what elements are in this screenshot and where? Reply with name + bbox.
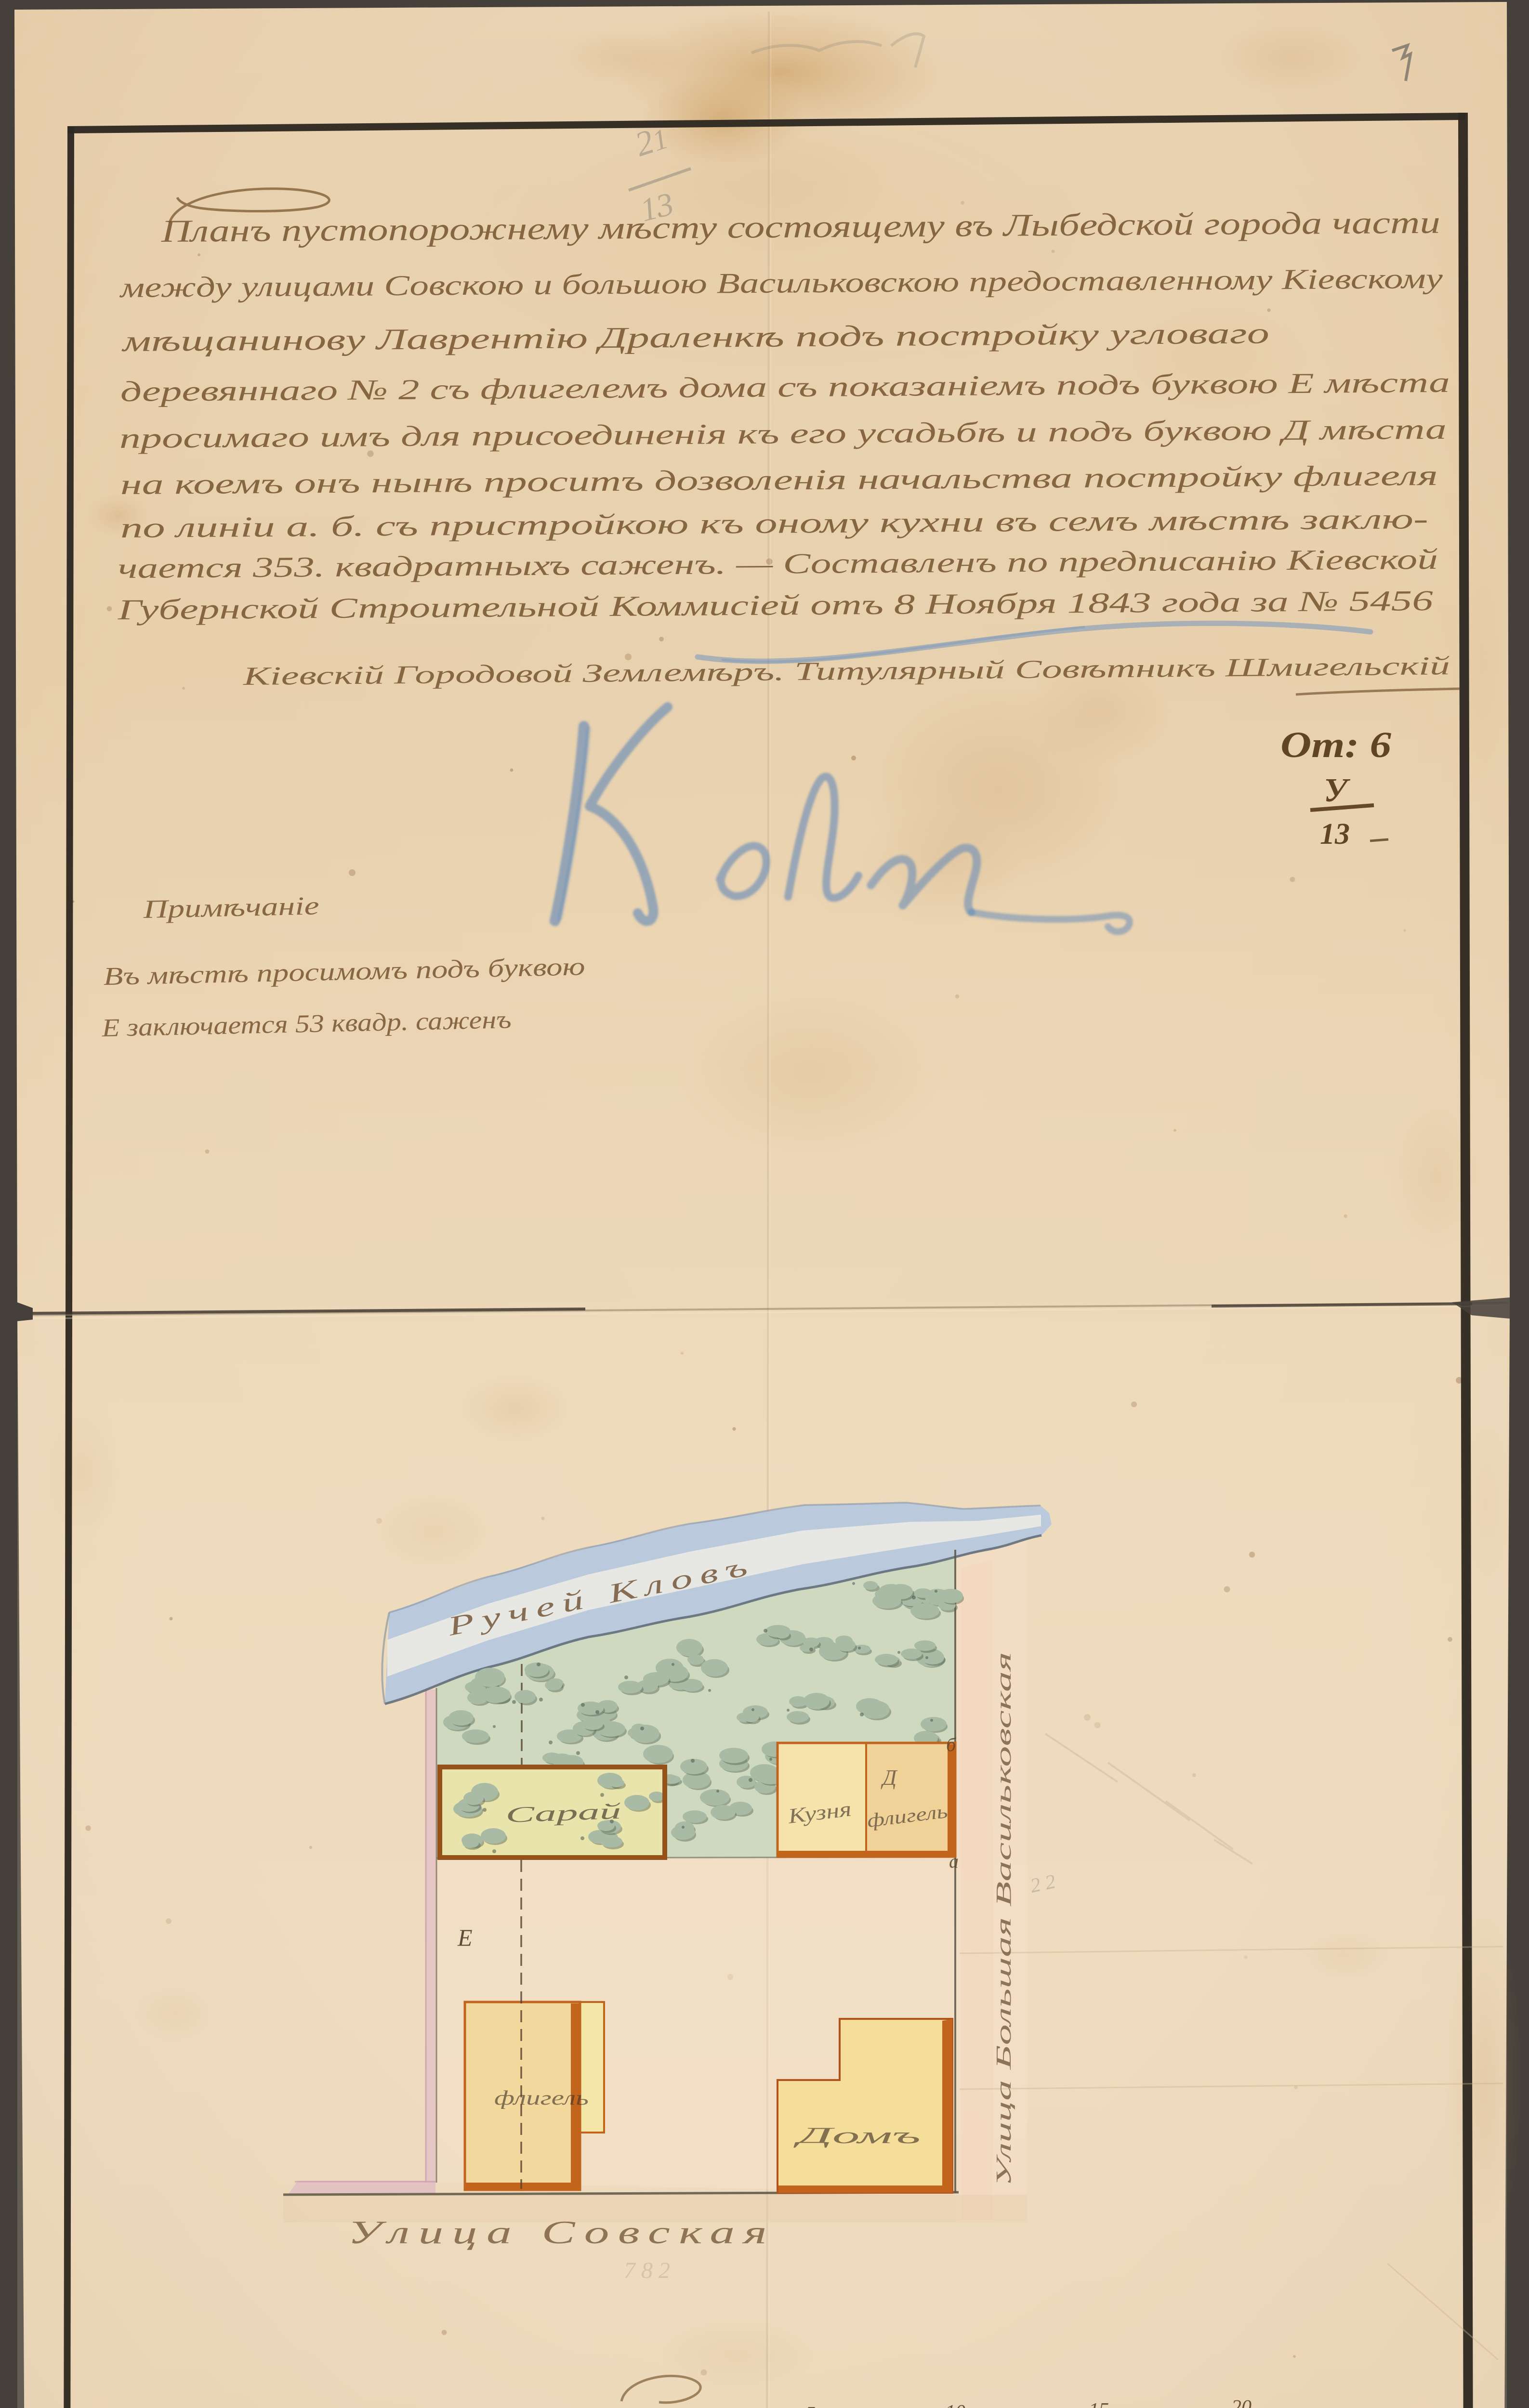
svg-text:Сарай: Сарай xyxy=(505,1799,622,1827)
svg-text:Е: Е xyxy=(457,1924,473,1951)
svg-text:Улица Большая Васильковская: Улица Большая Васильковская xyxy=(992,1652,1015,2186)
svg-text:13: 13 xyxy=(1320,818,1350,851)
svg-text:Домъ: Домъ xyxy=(793,2123,921,2148)
svg-text:У: У xyxy=(1324,772,1351,809)
svg-text:б: б xyxy=(946,1734,957,1755)
svg-text:Д: Д xyxy=(881,1765,898,1790)
svg-text:7 8 2: 7 8 2 xyxy=(624,2258,670,2283)
svg-text:Примѣчаніе: Примѣчаніе xyxy=(143,891,319,924)
svg-text:5.: 5. xyxy=(805,2403,821,2408)
svg-text:От: 6: От: 6 xyxy=(1280,725,1391,765)
svg-text:а: а xyxy=(949,1850,959,1872)
svg-text:15: 15 xyxy=(1089,2399,1109,2408)
svg-text:10: 10 xyxy=(945,2401,965,2408)
svg-text:Улица Совская: Улица Совская xyxy=(348,2214,776,2251)
svg-text:20: 20 xyxy=(1231,2396,1252,2408)
svg-text:флигель: флигель xyxy=(494,2087,589,2109)
